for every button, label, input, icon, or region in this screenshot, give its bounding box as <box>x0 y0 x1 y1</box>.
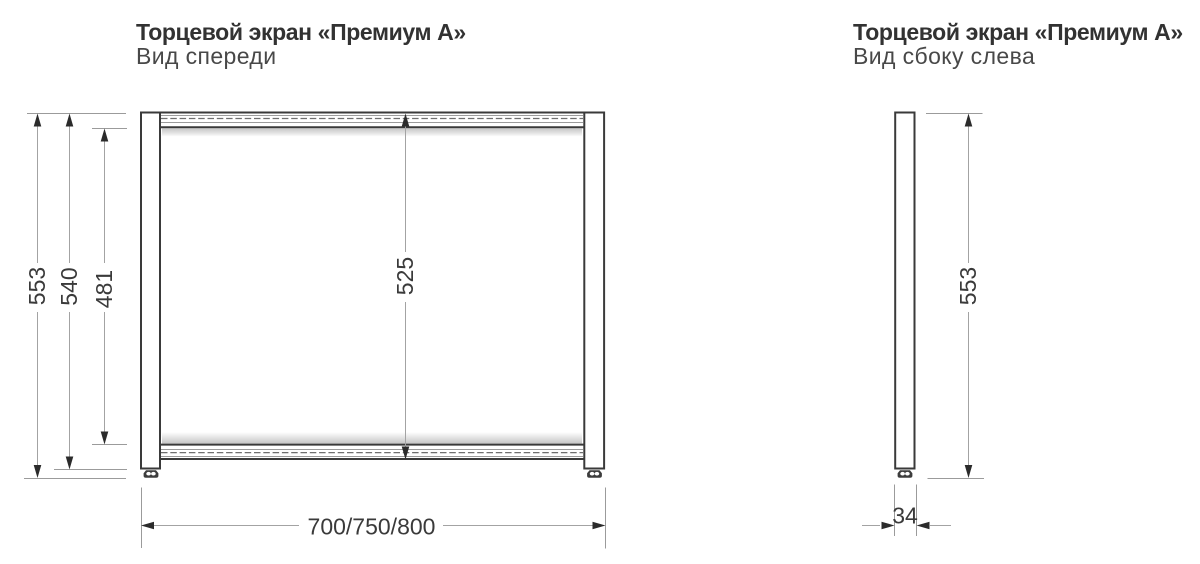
svg-text:540: 540 <box>56 267 82 305</box>
svg-text:553: 553 <box>955 267 981 305</box>
svg-text:Торцевой экран «Премиум А»: Торцевой экран «Премиум А» <box>136 19 466 45</box>
svg-text:34: 34 <box>892 503 918 529</box>
svg-text:481: 481 <box>91 270 117 308</box>
svg-text:553: 553 <box>24 267 50 305</box>
svg-text:700/750/800: 700/750/800 <box>308 514 436 540</box>
svg-text:525: 525 <box>392 257 418 295</box>
svg-text:Вид спереди: Вид спереди <box>136 43 277 69</box>
svg-text:Вид сбоку слева: Вид сбоку слева <box>853 43 1035 69</box>
svg-text:Торцевой экран «Премиум А»: Торцевой экран «Премиум А» <box>853 19 1183 45</box>
